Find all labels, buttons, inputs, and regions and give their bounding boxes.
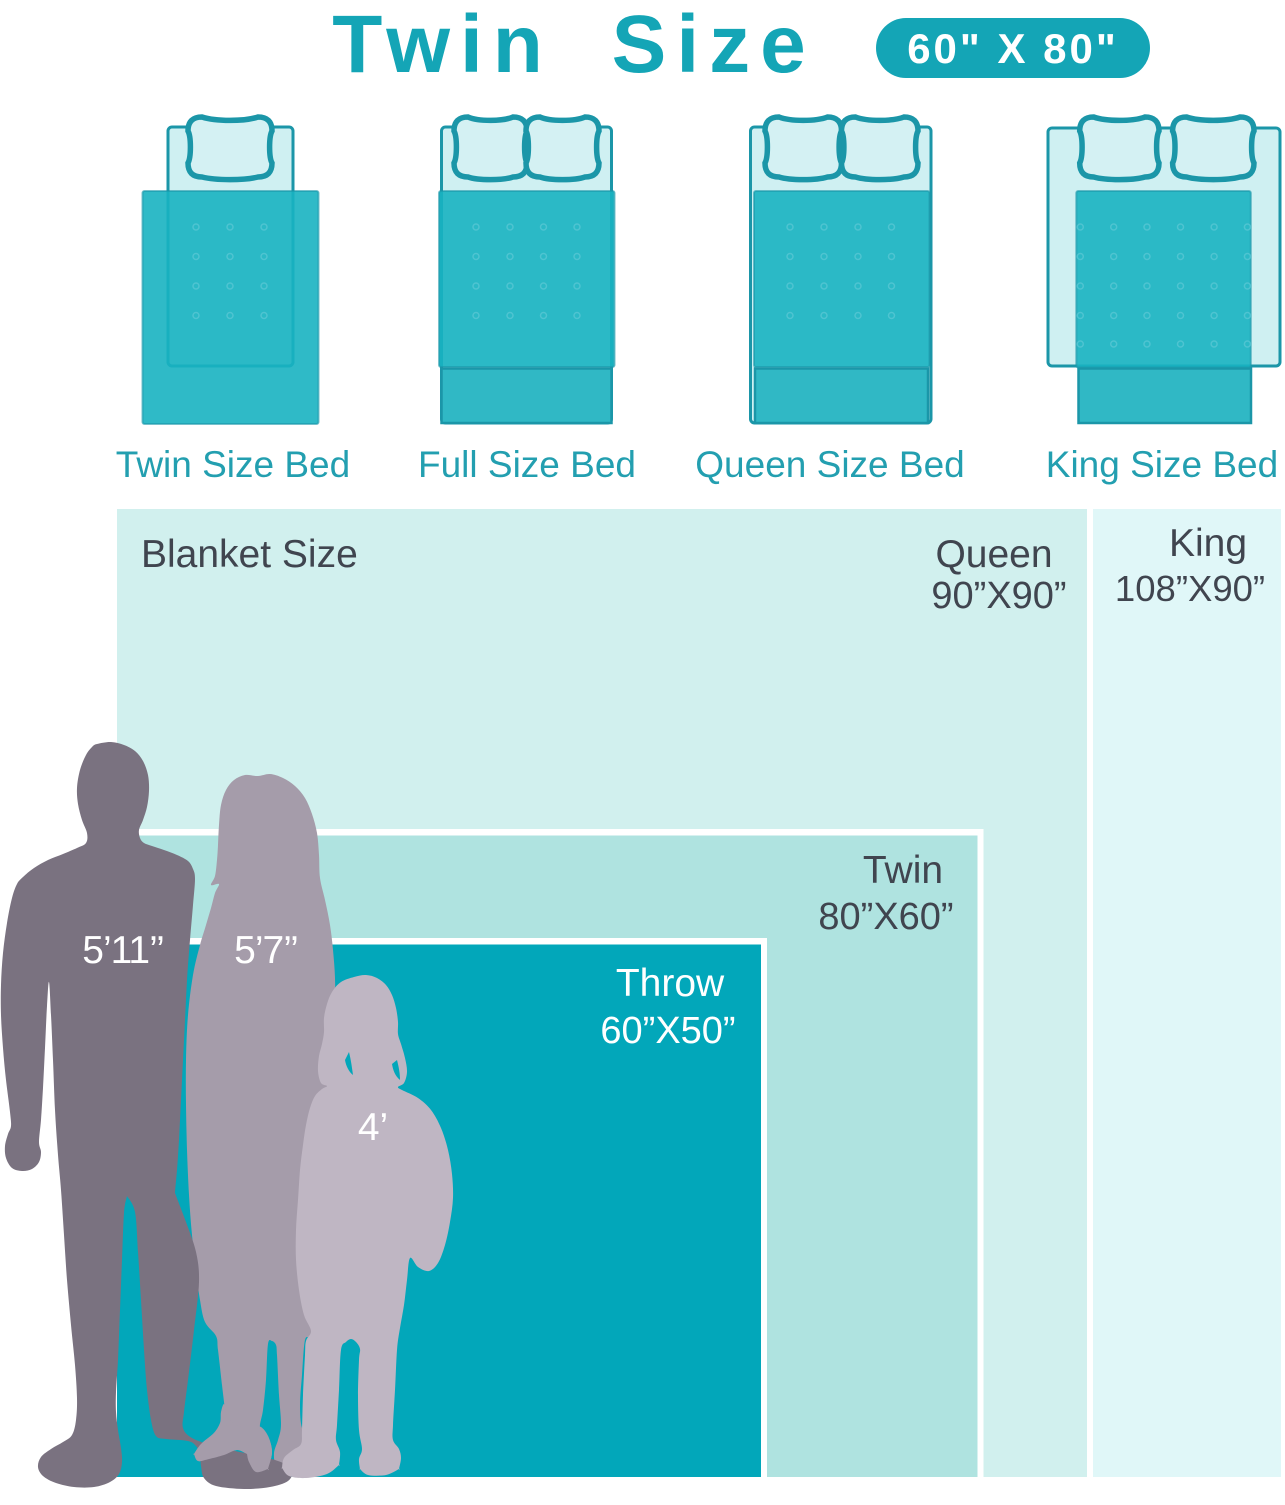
svg-text:Twin: Twin [863, 849, 943, 892]
svg-text:Twin Size: Twin Size [332, 0, 816, 90]
svg-text:5’11’’: 5’11’’ [82, 929, 163, 972]
svg-text:60" X 80": 60" X 80" [907, 25, 1119, 72]
svg-text:5’7’’: 5’7’’ [234, 929, 298, 972]
svg-text:80”X60”: 80”X60” [818, 896, 953, 938]
svg-text:King Size Bed: King Size Bed [1046, 444, 1278, 485]
svg-text:Full Size Bed: Full Size Bed [418, 444, 636, 485]
svg-text:4’: 4’ [358, 1106, 388, 1149]
svg-text:King: King [1169, 522, 1247, 565]
svg-text:Blanket Size: Blanket Size [141, 533, 358, 576]
svg-text:60”X50”: 60”X50” [600, 1010, 735, 1052]
svg-text:Queen: Queen [935, 533, 1052, 576]
svg-text:Queen Size Bed: Queen Size Bed [695, 444, 964, 485]
svg-text:90”X90”: 90”X90” [931, 575, 1066, 617]
svg-text:108”X90”: 108”X90” [1115, 568, 1265, 609]
svg-text:Throw: Throw [616, 962, 725, 1005]
svg-text:Twin Size Bed: Twin Size Bed [116, 444, 350, 485]
